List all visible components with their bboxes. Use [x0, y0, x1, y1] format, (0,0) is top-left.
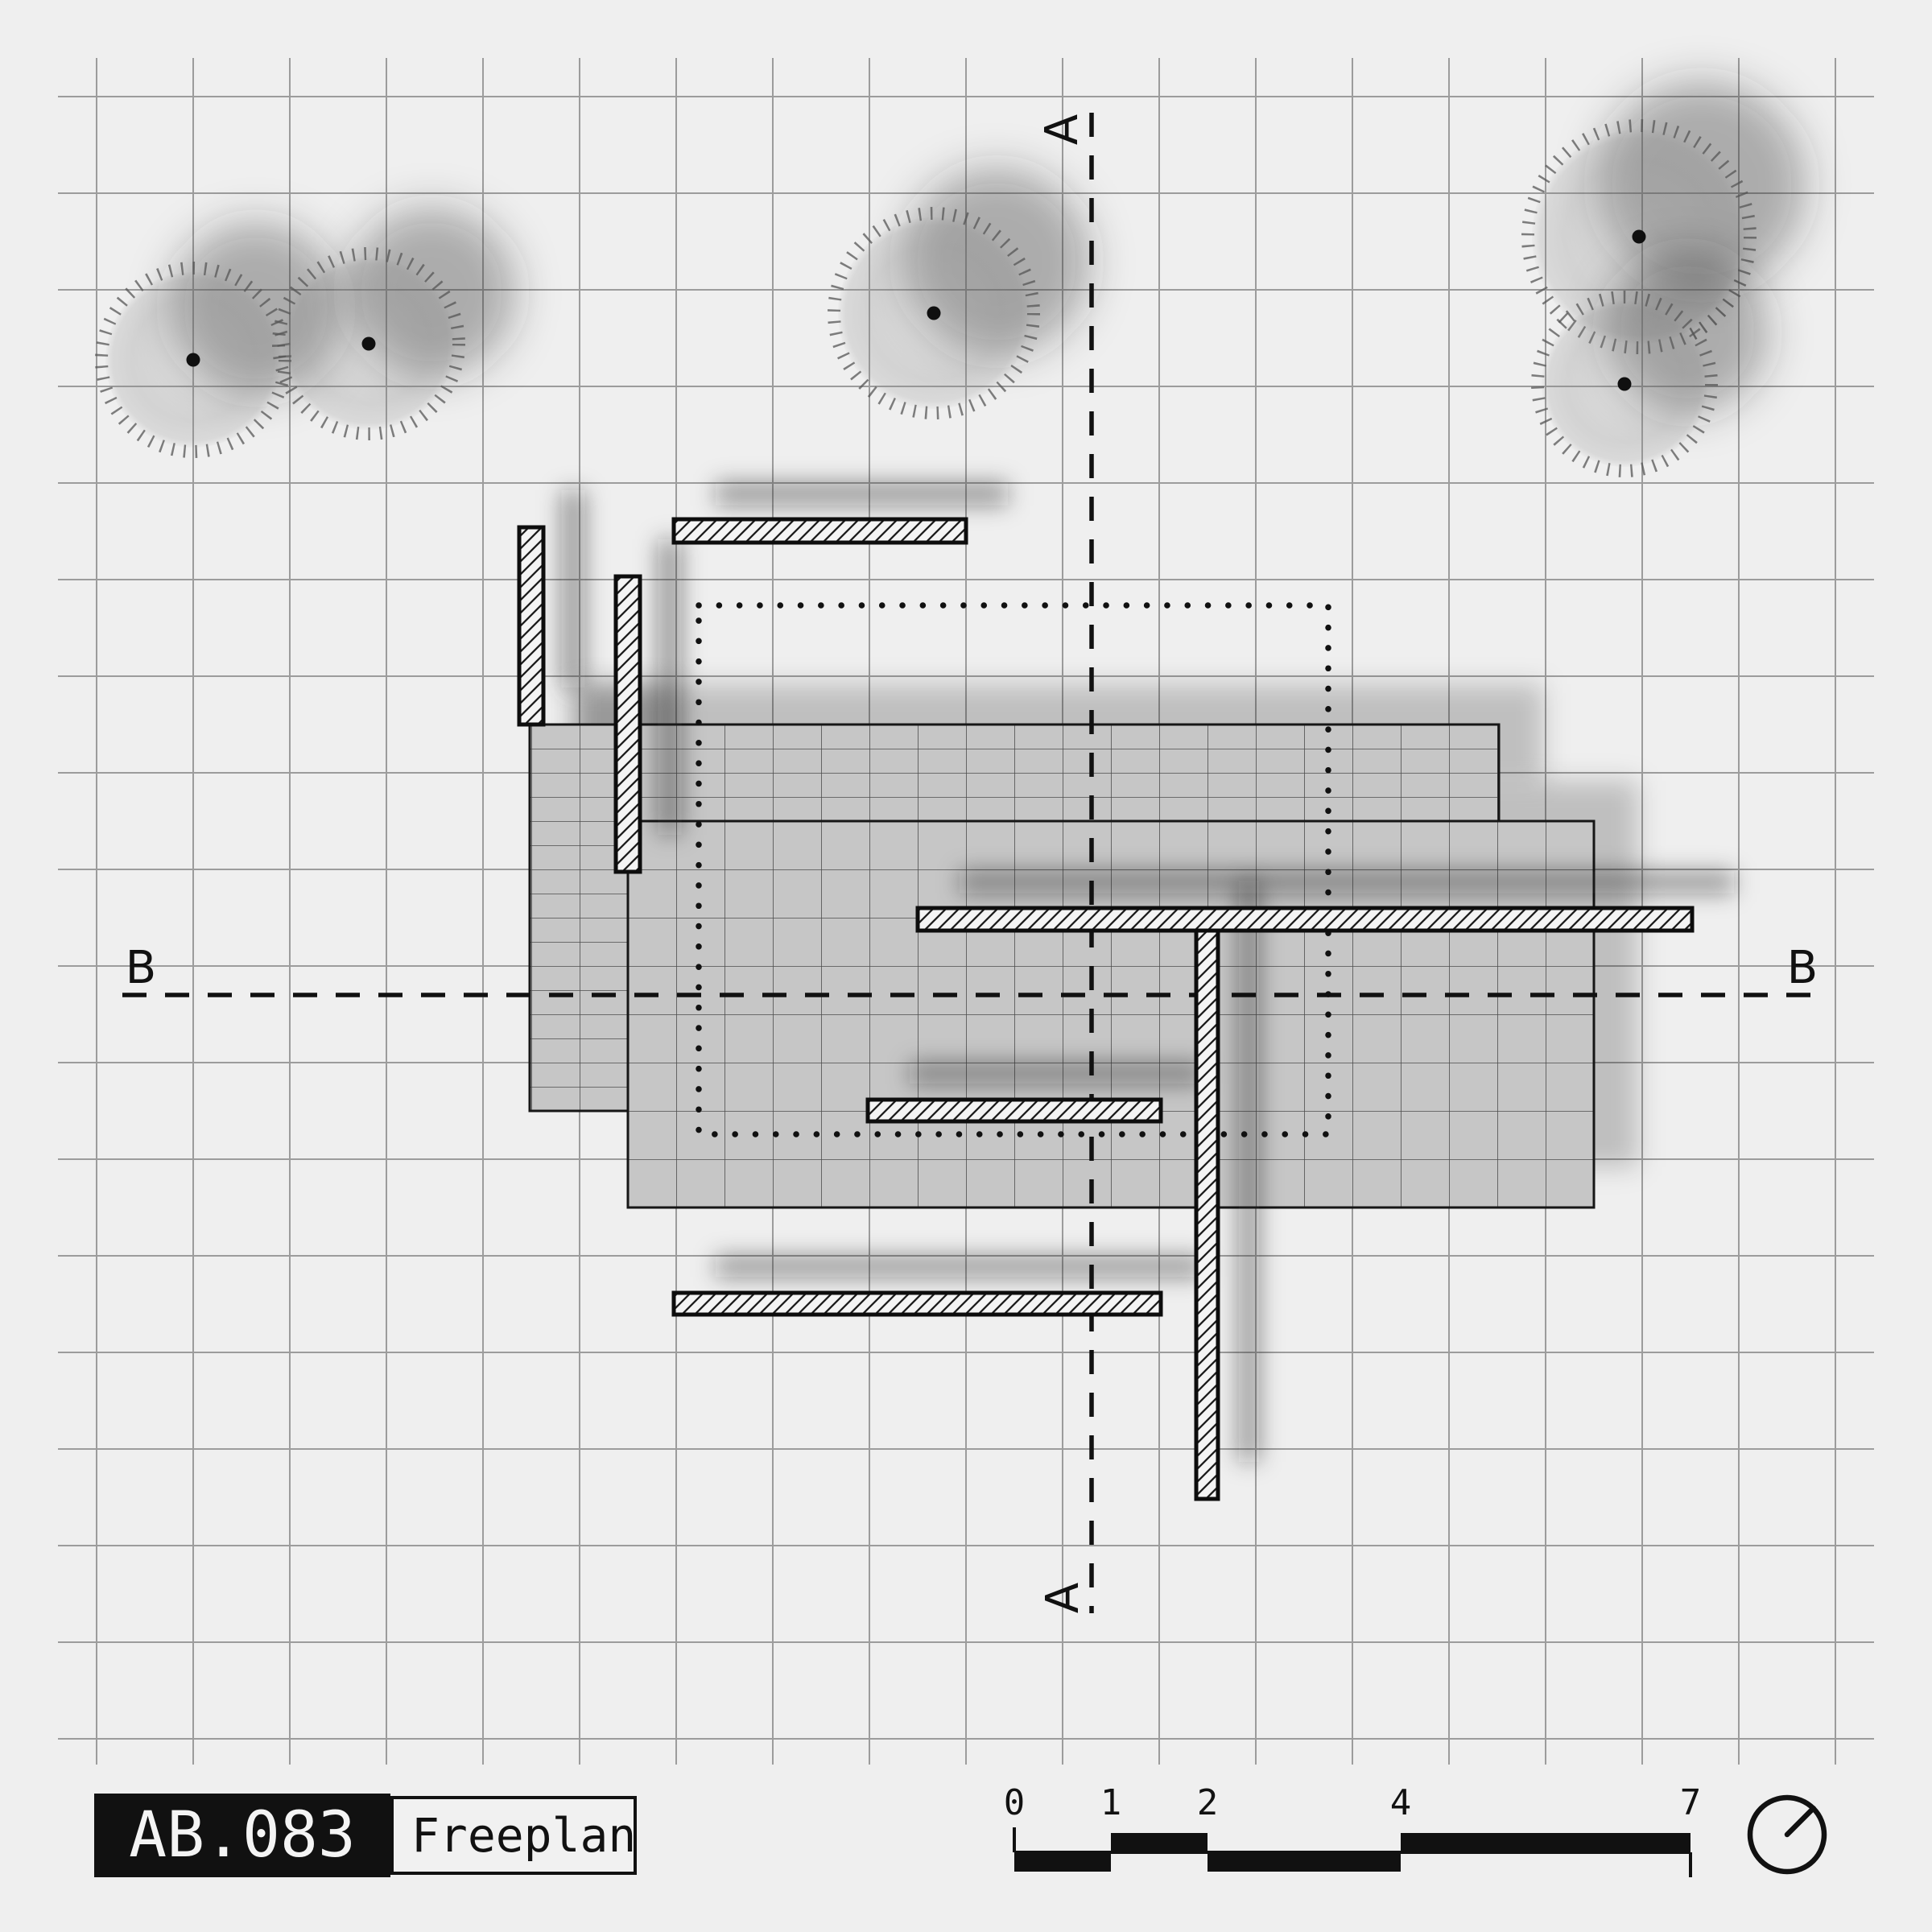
tree-trunk-dot — [1633, 230, 1646, 244]
section-label-a-bottom: A — [1041, 1583, 1086, 1613]
wall — [918, 908, 1692, 931]
wall — [674, 519, 966, 543]
trees — [101, 80, 1806, 471]
wall — [868, 1100, 1161, 1121]
scale-label: 0 — [1004, 1785, 1026, 1821]
scale-label: 1 — [1100, 1785, 1122, 1821]
section-label-a-top: A — [1040, 114, 1085, 145]
wall-shadow — [716, 1256, 1203, 1278]
scale-bar-block — [1401, 1833, 1690, 1852]
wall-shadow — [716, 482, 1008, 506]
wall-shadow — [561, 490, 585, 687]
sheet-name-box: Freeplan — [390, 1796, 637, 1875]
drawing-sheet: A A B B 01247 AB.083 Freeplan — [0, 0, 1932, 1932]
section-label-b-left: B — [126, 946, 156, 991]
scale-bar-block — [1111, 1833, 1207, 1852]
tree — [834, 167, 1091, 413]
wall — [1196, 918, 1218, 1499]
section-label-b-right: B — [1787, 946, 1818, 991]
wall-shadow — [1238, 881, 1260, 1462]
scale-label: 2 — [1197, 1785, 1219, 1821]
sheet-code-box: AB.083 — [94, 1794, 390, 1877]
scale-bar-block — [1014, 1852, 1111, 1872]
wall-shadow — [658, 539, 682, 835]
sheet-name: Freeplan — [411, 1808, 636, 1863]
north-arrow-needle — [1787, 1808, 1814, 1835]
sheet-code: AB.083 — [129, 1799, 356, 1872]
tree — [279, 208, 516, 434]
scale-label: 4 — [1390, 1785, 1412, 1821]
tree-trunk-dot — [187, 353, 200, 367]
wall — [616, 576, 640, 872]
tree-trunk-dot — [927, 307, 941, 320]
scale-label: 7 — [1680, 1785, 1702, 1821]
wall-shadow — [960, 871, 1734, 894]
tree-trunk-dot — [1618, 378, 1632, 391]
wall — [519, 527, 543, 724]
tree-trunk-dot — [362, 337, 376, 351]
scale-bar-block — [1207, 1852, 1401, 1872]
plan-drawing — [0, 0, 1932, 1932]
scale-bar — [1014, 1827, 1690, 1877]
wall-shadow — [910, 1063, 1203, 1084]
wall — [674, 1293, 1161, 1315]
north-arrow-icon — [1750, 1798, 1824, 1872]
slab — [530, 724, 628, 1111]
